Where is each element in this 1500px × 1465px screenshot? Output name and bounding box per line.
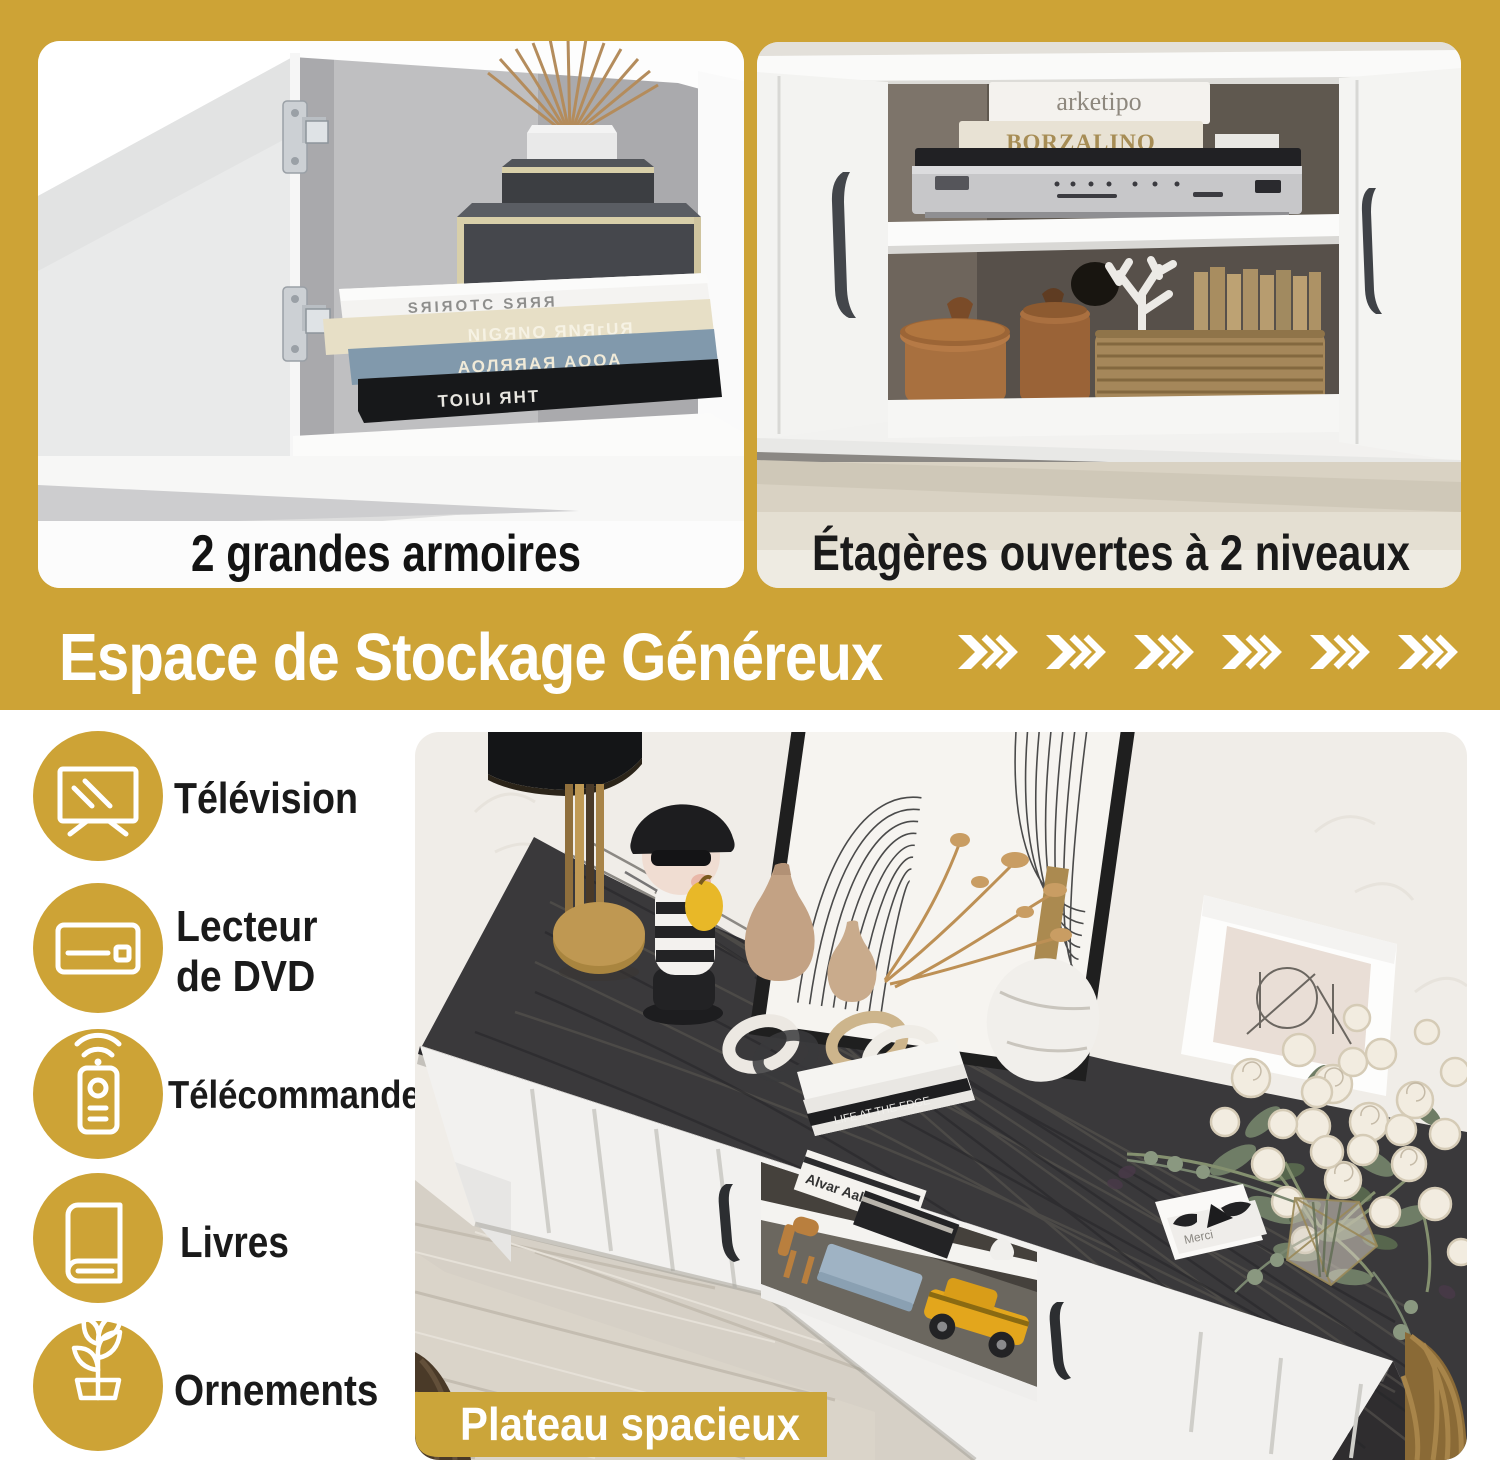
svg-text:2 grandes armoires: 2 grandes armoires xyxy=(191,525,581,583)
svg-text:arketipo: arketipo xyxy=(1056,87,1141,116)
svg-text:Plateau spacieux: Plateau spacieux xyxy=(460,1398,800,1450)
svg-text:Étagères ouvertes à 2 niveaux: Étagères ouvertes à 2 niveaux xyxy=(812,525,1410,581)
